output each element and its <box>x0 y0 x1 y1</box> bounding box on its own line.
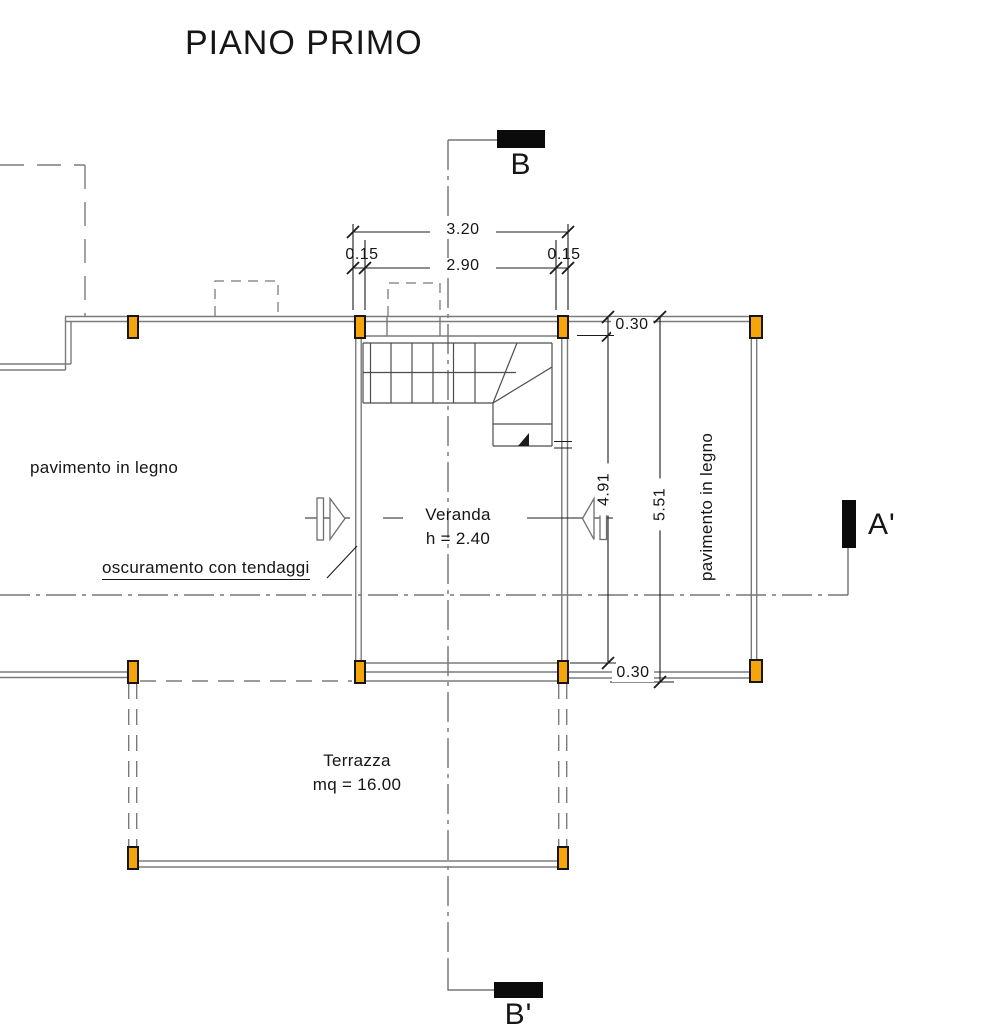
dim-offset-right: 0.15 <box>545 247 583 264</box>
section-marker-b <box>497 130 545 148</box>
label-curtain-shading: oscuramento con tendaggi <box>102 559 310 580</box>
column-marker <box>128 316 138 338</box>
dim-wall-top: 0.30 <box>611 317 653 334</box>
label-floor-right: pavimento in legno <box>698 432 716 582</box>
curtain-leader-line <box>327 546 357 578</box>
column-marker <box>558 661 568 683</box>
label-terrace: Terrazza <box>307 752 407 770</box>
dim-total-width: 3.20 <box>430 222 496 239</box>
page-title: PIANO PRIMO <box>185 26 423 62</box>
terrace-outline <box>129 681 567 867</box>
chimney-dashed-right <box>388 283 440 316</box>
label-floor-left: pavimento in legno <box>30 459 178 477</box>
floor-plan-canvas: PIANO PRIMO B 3.20 0.15 2.90 0.15 pavime… <box>0 0 991 1024</box>
label-terrace-area: mq = 16.00 <box>307 776 407 794</box>
dim-inner-width: 2.90 <box>430 258 496 275</box>
section-marker-a-prime <box>842 500 856 548</box>
column-marker <box>750 660 762 682</box>
column-marker <box>750 316 762 338</box>
columns <box>128 316 762 869</box>
section-label-b-prime: B' <box>494 999 543 1024</box>
column-marker <box>558 316 568 338</box>
stairs <box>363 343 552 446</box>
label-room-name: Veranda <box>408 506 508 524</box>
dim-total-height: 5.51 <box>653 478 670 530</box>
label-room-height: h = 2.40 <box>408 530 508 548</box>
chimney-dashed-left <box>215 281 278 316</box>
main-walls <box>0 317 757 682</box>
dim-inner-height: 4.91 <box>597 463 614 515</box>
column-marker <box>128 661 138 683</box>
column-marker <box>558 847 568 869</box>
column-marker <box>355 316 365 338</box>
section-label-a-prime: A' <box>868 509 896 541</box>
section-label-b: B <box>497 149 545 181</box>
window-symbol-left <box>305 498 350 540</box>
dim-wall-bottom: 0.30 <box>612 665 654 682</box>
dim-offset-left: 0.15 <box>343 247 381 264</box>
upper-floor-dashed-outline <box>0 165 85 316</box>
column-marker <box>355 661 365 683</box>
column-marker <box>128 847 138 869</box>
section-marker-b-prime <box>494 982 543 998</box>
stair-direction-arrow <box>518 433 529 446</box>
